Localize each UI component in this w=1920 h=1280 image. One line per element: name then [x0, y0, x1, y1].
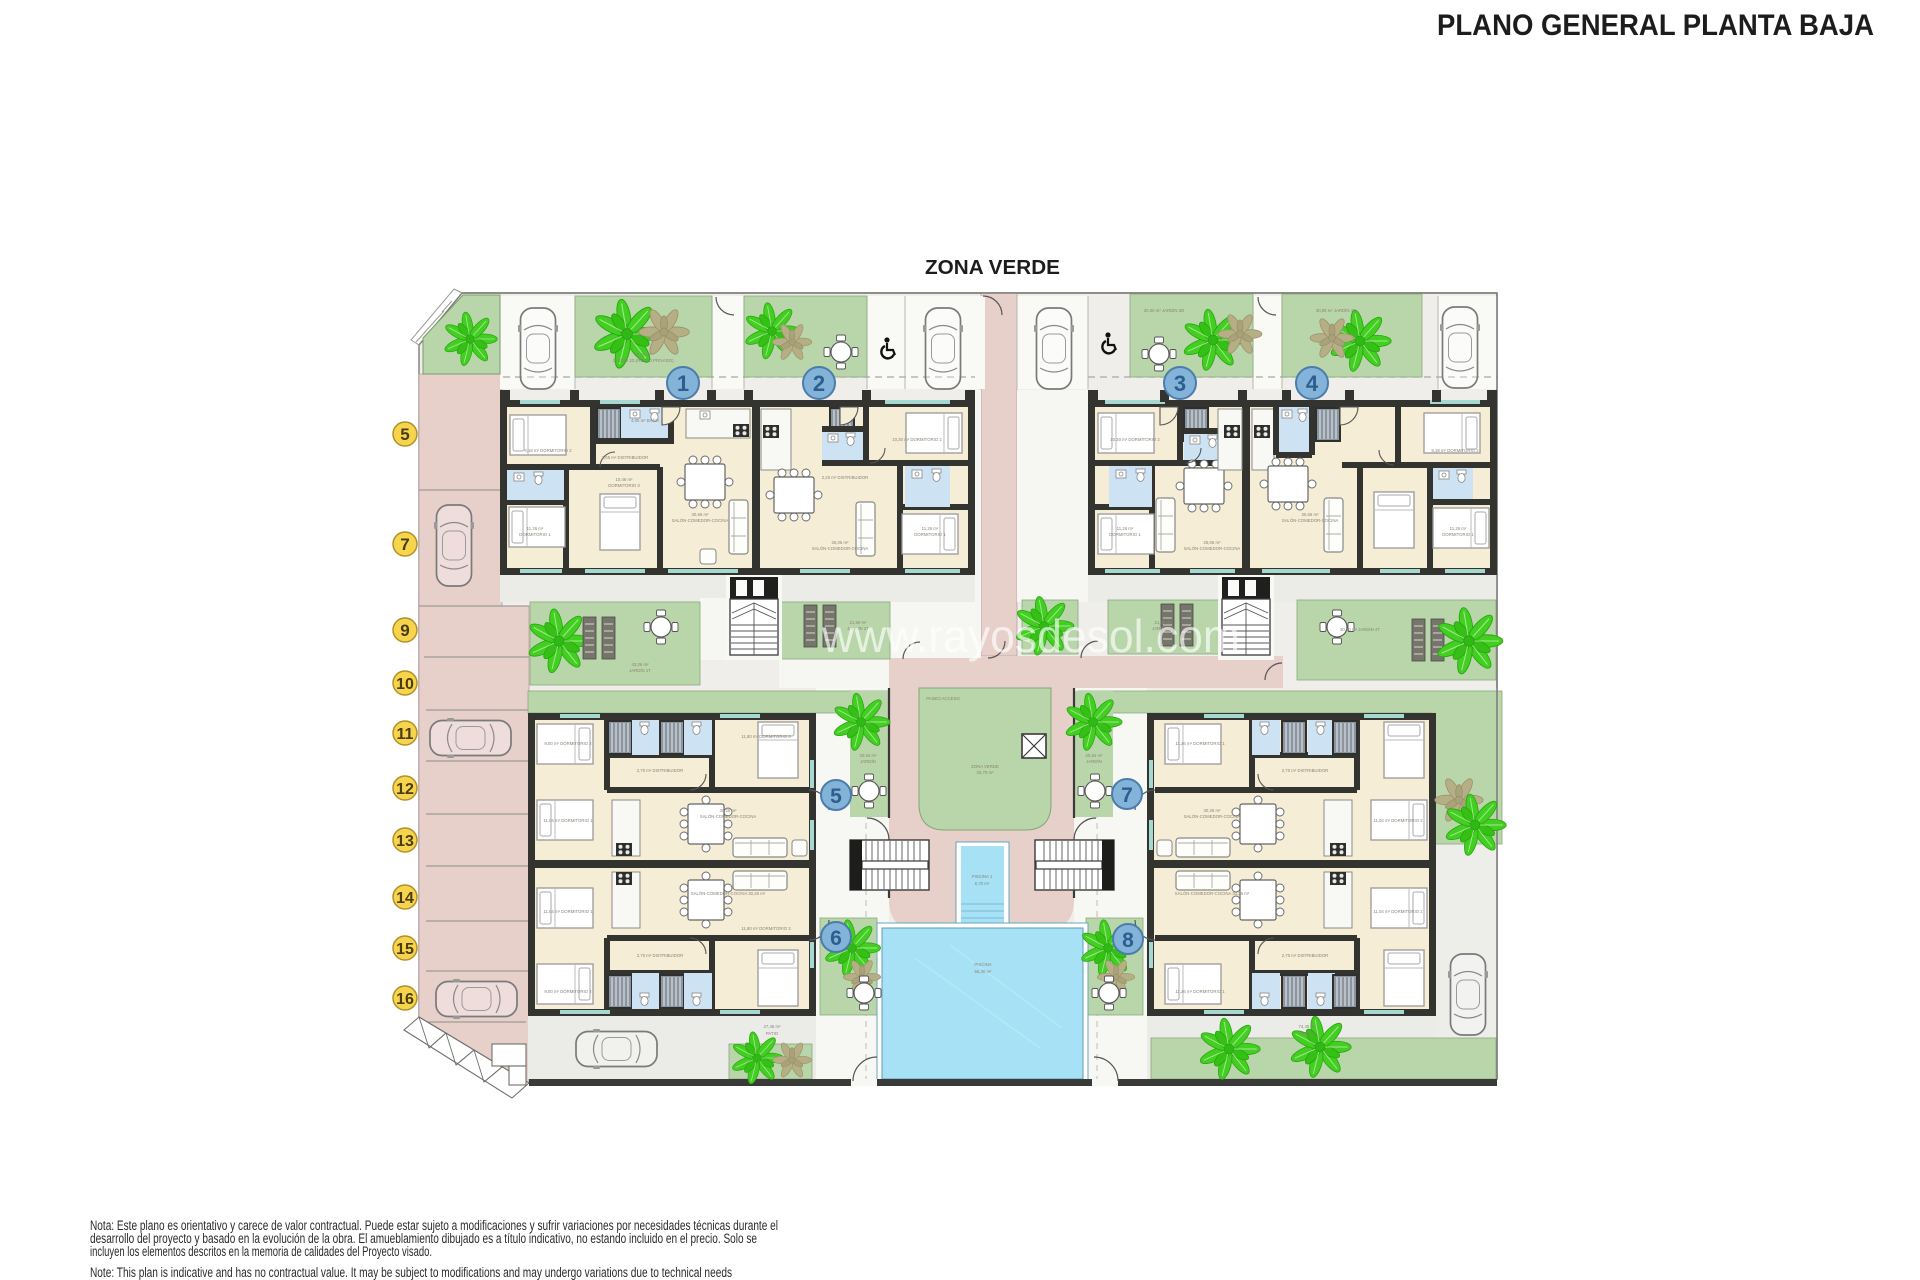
svg-text:11: 11 — [397, 726, 414, 743]
svg-text:11,04 m² DORMITORIO 2: 11,04 m² DORMITORIO 2 — [1373, 818, 1423, 823]
svg-text:9,00 m² DORMITORIO 2: 9,00 m² DORMITORIO 2 — [544, 989, 592, 994]
svg-text:JARDÍN: JARDÍN — [1086, 759, 1102, 764]
svg-text:ZONA VERDE: ZONA VERDE — [971, 764, 999, 769]
svg-text:2: 2 — [813, 371, 825, 396]
svg-text:JARDÍN 1D (REPTO.PRIVADO): JARDÍN 1D (REPTO.PRIVADO) — [612, 358, 674, 363]
svg-text:4: 4 — [1306, 371, 1319, 396]
svg-text:JARDÍN: JARDÍN — [1299, 1031, 1315, 1036]
svg-text:SALÓN-COMEDOR-COCINA: SALÓN-COMEDOR-COCINA — [1184, 814, 1241, 819]
svg-text:www.rayosdesol.com: www.rayosdesol.com — [821, 610, 1240, 662]
svg-text:SALÓN-COMEDOR-COCINA: SALÓN-COMEDOR-COCINA — [672, 518, 729, 523]
svg-text:PISCINA: PISCINA — [974, 962, 991, 967]
svg-text:2,70 m² DISTRIBUIDOR: 2,70 m² DISTRIBUIDOR — [1282, 768, 1329, 773]
svg-text:27,46 m²: 27,46 m² — [764, 1024, 782, 1029]
svg-text:43,26 m²: 43,26 m² — [632, 662, 650, 667]
svg-text:2,70 m² DISTRIBUIDOR: 2,70 m² DISTRIBUIDOR — [637, 768, 684, 773]
svg-text:30,26 m²: 30,26 m² — [720, 808, 738, 813]
svg-text:1: 1 — [677, 371, 689, 396]
svg-text:ZONA VERDE: ZONA VERDE — [925, 257, 1060, 279]
svg-text:14: 14 — [396, 890, 414, 907]
svg-text:74,40 m²: 74,40 m² — [1299, 1024, 1317, 1029]
svg-text:56,30 m²: 56,30 m² — [975, 969, 993, 974]
svg-text:SALÓN-COMEDOR-COCINA: SALÓN-COMEDOR-COCINA — [1282, 518, 1339, 523]
svg-text:9,18 m² DORMITORIO 2: 9,18 m² DORMITORIO 2 — [524, 448, 572, 453]
svg-text:30,30 m² JARDÍN 4T: 30,30 m² JARDÍN 4T — [1340, 627, 1380, 632]
svg-text:2,70 m² DISTRIBUIDOR: 2,70 m² DISTRIBUIDOR — [1282, 953, 1329, 958]
svg-text:DORMITORIO 3: DORMITORIO 3 — [608, 483, 640, 488]
svg-text:11,04 m² DORMITORIO 2: 11,04 m² DORMITORIO 2 — [1373, 909, 1423, 914]
svg-text:4,05 m² BAÑO: 4,05 m² BAÑO — [631, 418, 660, 423]
svg-text:PLANO GENERAL PLANTA BAJA: PLANO GENERAL PLANTA BAJA — [1437, 9, 1874, 42]
svg-text:6,70 m²: 6,70 m² — [975, 881, 990, 886]
svg-text:2,65 m² DISTRIBUIDOR: 2,65 m² DISTRIBUIDOR — [602, 455, 649, 460]
svg-text:10,30 m² DORMITORIO 2: 10,30 m² DORMITORIO 2 — [1110, 437, 1160, 442]
svg-text:7: 7 — [1121, 784, 1133, 807]
svg-text:30,66 m²: 30,66 m² — [1302, 512, 1320, 517]
svg-text:PASEO ACCESO: PASEO ACCESO — [926, 696, 960, 701]
svg-text:6: 6 — [830, 927, 842, 950]
svg-text:DORMITORIO 1: DORMITORIO 1 — [914, 532, 946, 537]
svg-text:7: 7 — [400, 535, 409, 554]
svg-text:JARDÍN 1T: JARDÍN 1T — [629, 668, 651, 673]
svg-text:9,00 m² DORMITORIO 2: 9,00 m² DORMITORIO 2 — [544, 741, 592, 746]
svg-text:30,26 m²: 30,26 m² — [1204, 808, 1222, 813]
svg-text:11,26 m²: 11,26 m² — [922, 526, 939, 531]
svg-text:23,70 m²: 23,70 m² — [977, 770, 995, 775]
svg-text:3: 3 — [1174, 371, 1186, 396]
svg-text:30,66 m²: 30,66 m² — [692, 512, 710, 517]
svg-text:PISCINA 1: PISCINA 1 — [972, 874, 993, 879]
svg-text:SALÓN-COMEDOR-COCINA 30,26 m²: SALÓN-COMEDOR-COCINA 30,26 m² — [691, 891, 766, 896]
svg-text:11,26 m²: 11,26 m² — [1117, 526, 1134, 531]
svg-text:20,84 m²: 20,84 m² — [860, 753, 878, 758]
svg-text:29,30 m²: 29,30 m² — [635, 352, 653, 357]
svg-text:2,70 m² DISTRIBUIDOR: 2,70 m² DISTRIBUIDOR — [637, 953, 684, 958]
svg-text:12: 12 — [396, 781, 414, 798]
svg-text:20,84 m²: 20,84 m² — [1086, 753, 1104, 758]
svg-text:13: 13 — [396, 833, 414, 850]
svg-text:2,20 m² DISTRIBUIDOR: 2,20 m² DISTRIBUIDOR — [822, 475, 869, 480]
svg-text:5: 5 — [400, 425, 409, 444]
svg-text:Note: This plan is indicative: Note: This plan is indicative and has no… — [90, 1265, 732, 1280]
svg-text:9: 9 — [400, 621, 409, 640]
svg-text:5: 5 — [830, 785, 842, 808]
svg-text:DORMITORIO 1: DORMITORIO 1 — [1109, 532, 1141, 537]
svg-text:11,26 m² DORMITORIO 1: 11,26 m² DORMITORIO 1 — [1175, 741, 1225, 746]
svg-text:SALÓN-COMEDOR-COCINA 30,26 m²: SALÓN-COMEDOR-COCINA 30,26 m² — [1175, 891, 1250, 896]
svg-text:DORMITORIO 1: DORMITORIO 1 — [519, 532, 551, 537]
svg-text:11,04 m² DORMITORIO 1: 11,04 m² DORMITORIO 1 — [543, 909, 593, 914]
svg-text:10: 10 — [396, 676, 414, 693]
svg-text:DORMITORIO 1: DORMITORIO 1 — [1442, 532, 1474, 537]
svg-text:11,26 m²: 11,26 m² — [527, 526, 544, 531]
svg-text:8: 8 — [1122, 929, 1134, 952]
svg-text:9,18 m² DORMITORIO 2: 9,18 m² DORMITORIO 2 — [1431, 448, 1479, 453]
svg-text:11,26 m²: 11,26 m² — [1450, 526, 1467, 531]
svg-text:11,80 m² DORMITORIO 3: 11,80 m² DORMITORIO 3 — [741, 734, 791, 739]
svg-text:16: 16 — [396, 991, 414, 1008]
svg-text:15: 15 — [396, 941, 414, 958]
svg-text:incluyen los elementos descrit: incluyen los elementos descritos en la m… — [90, 1244, 432, 1259]
svg-text:30,08 m² JARDÍN 4D: 30,08 m² JARDÍN 4D — [1316, 308, 1356, 313]
svg-text:JARDÍN: JARDÍN — [860, 759, 876, 764]
svg-text:10,30 m² DORMITORIO 2: 10,30 m² DORMITORIO 2 — [892, 437, 942, 442]
svg-text:26,06 m²: 26,06 m² — [1204, 540, 1222, 545]
svg-text:30,30 m² JARDÍN 3D: 30,30 m² JARDÍN 3D — [1144, 308, 1184, 313]
svg-text:PATIO: PATIO — [766, 1031, 779, 1036]
svg-text:11,04 m² DORMITORIO 1: 11,04 m² DORMITORIO 1 — [543, 818, 593, 823]
svg-text:10,46 m²: 10,46 m² — [616, 477, 634, 482]
svg-text:26,06 m²: 26,06 m² — [832, 540, 850, 545]
svg-text:SALÓN-COMEDOR-COCINA: SALÓN-COMEDOR-COCINA — [812, 546, 869, 551]
svg-text:11,26 m² DORMITORIO 1: 11,26 m² DORMITORIO 1 — [1175, 989, 1225, 994]
svg-text:SALÓN-COMEDOR-COCINA: SALÓN-COMEDOR-COCINA — [700, 814, 757, 819]
svg-text:11,80 m² DORMITORIO 3: 11,80 m² DORMITORIO 3 — [741, 926, 791, 931]
svg-text:SALÓN-COMEDOR-COCINA: SALÓN-COMEDOR-COCINA — [1184, 546, 1241, 551]
